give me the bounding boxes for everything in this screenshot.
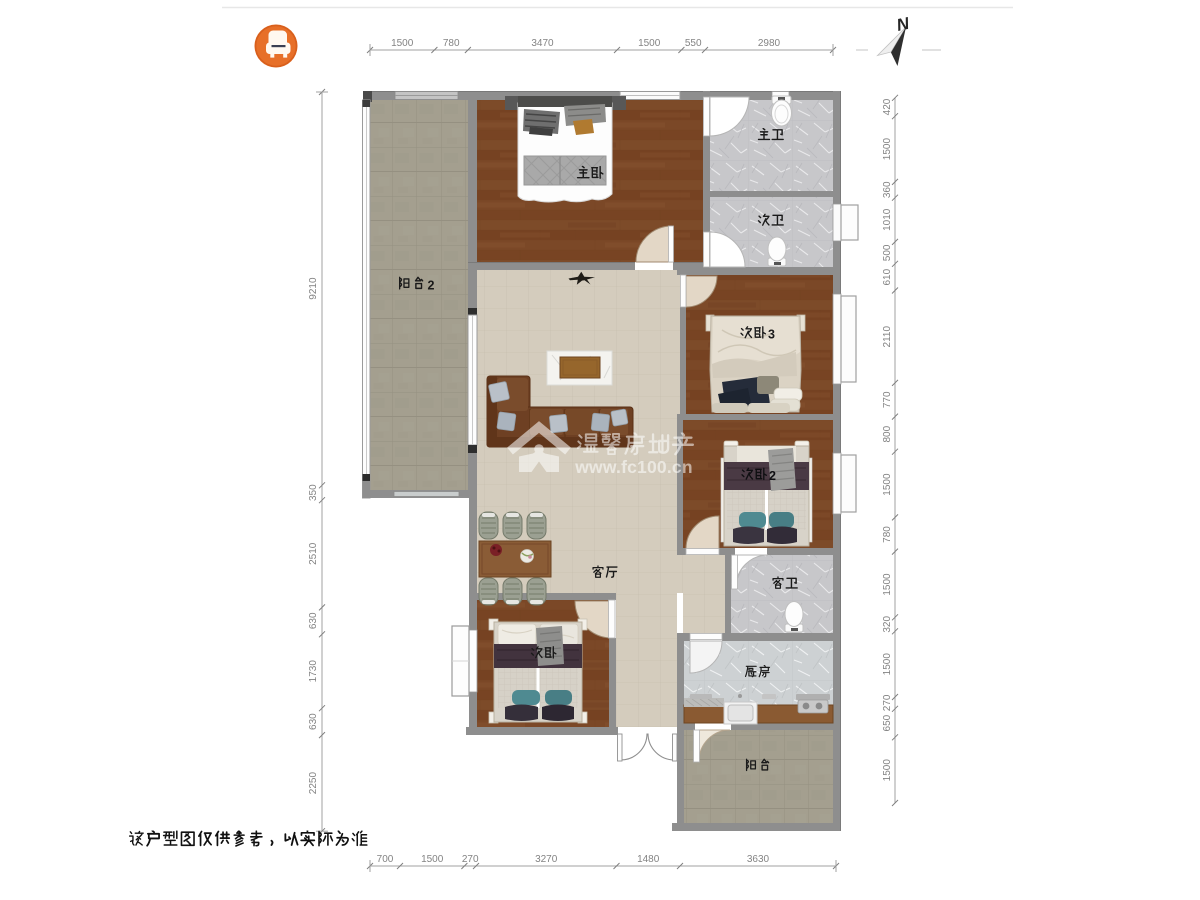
svg-text:3: 3	[768, 328, 775, 342]
svg-text:2980: 2980	[758, 38, 781, 49]
svg-text:2510: 2510	[308, 542, 319, 565]
svg-text:1500: 1500	[882, 573, 893, 596]
svg-text:1500: 1500	[391, 38, 414, 49]
svg-text:610: 610	[882, 268, 893, 285]
svg-text:www.fc100.cn: www.fc100.cn	[574, 457, 693, 477]
svg-text:270: 270	[462, 854, 479, 865]
svg-text:1500: 1500	[882, 473, 893, 496]
svg-text:N: N	[895, 14, 912, 35]
svg-text:500: 500	[882, 244, 893, 261]
svg-text:1500: 1500	[638, 38, 661, 49]
svg-text:360: 360	[882, 181, 893, 198]
svg-text:700: 700	[377, 854, 394, 865]
svg-text:770: 770	[882, 391, 893, 408]
svg-text:9210: 9210	[308, 277, 319, 300]
svg-text:3270: 3270	[535, 854, 558, 865]
svg-text:630: 630	[308, 612, 319, 629]
svg-text:1500: 1500	[421, 854, 444, 865]
svg-text:800: 800	[882, 425, 893, 442]
svg-text:350: 350	[308, 484, 319, 501]
svg-text:630: 630	[308, 713, 319, 730]
svg-text:1010: 1010	[882, 208, 893, 231]
svg-text:550: 550	[685, 38, 702, 49]
svg-text:420: 420	[882, 98, 893, 115]
svg-text:2: 2	[769, 469, 776, 483]
svg-text:780: 780	[443, 38, 460, 49]
svg-text:780: 780	[882, 526, 893, 543]
svg-text:270: 270	[882, 694, 893, 711]
svg-text:2110: 2110	[882, 326, 893, 348]
svg-text:1730: 1730	[308, 660, 319, 683]
svg-text:1500: 1500	[882, 138, 893, 161]
svg-text:1480: 1480	[637, 854, 660, 865]
svg-text:2: 2	[428, 279, 435, 293]
svg-text:1500: 1500	[882, 759, 893, 782]
svg-text:320: 320	[882, 616, 893, 633]
svg-text:2250: 2250	[308, 772, 319, 795]
svg-text:3470: 3470	[531, 38, 554, 49]
svg-text:3630: 3630	[747, 854, 770, 865]
svg-text:1500: 1500	[882, 653, 893, 676]
svg-text:650: 650	[882, 714, 893, 731]
